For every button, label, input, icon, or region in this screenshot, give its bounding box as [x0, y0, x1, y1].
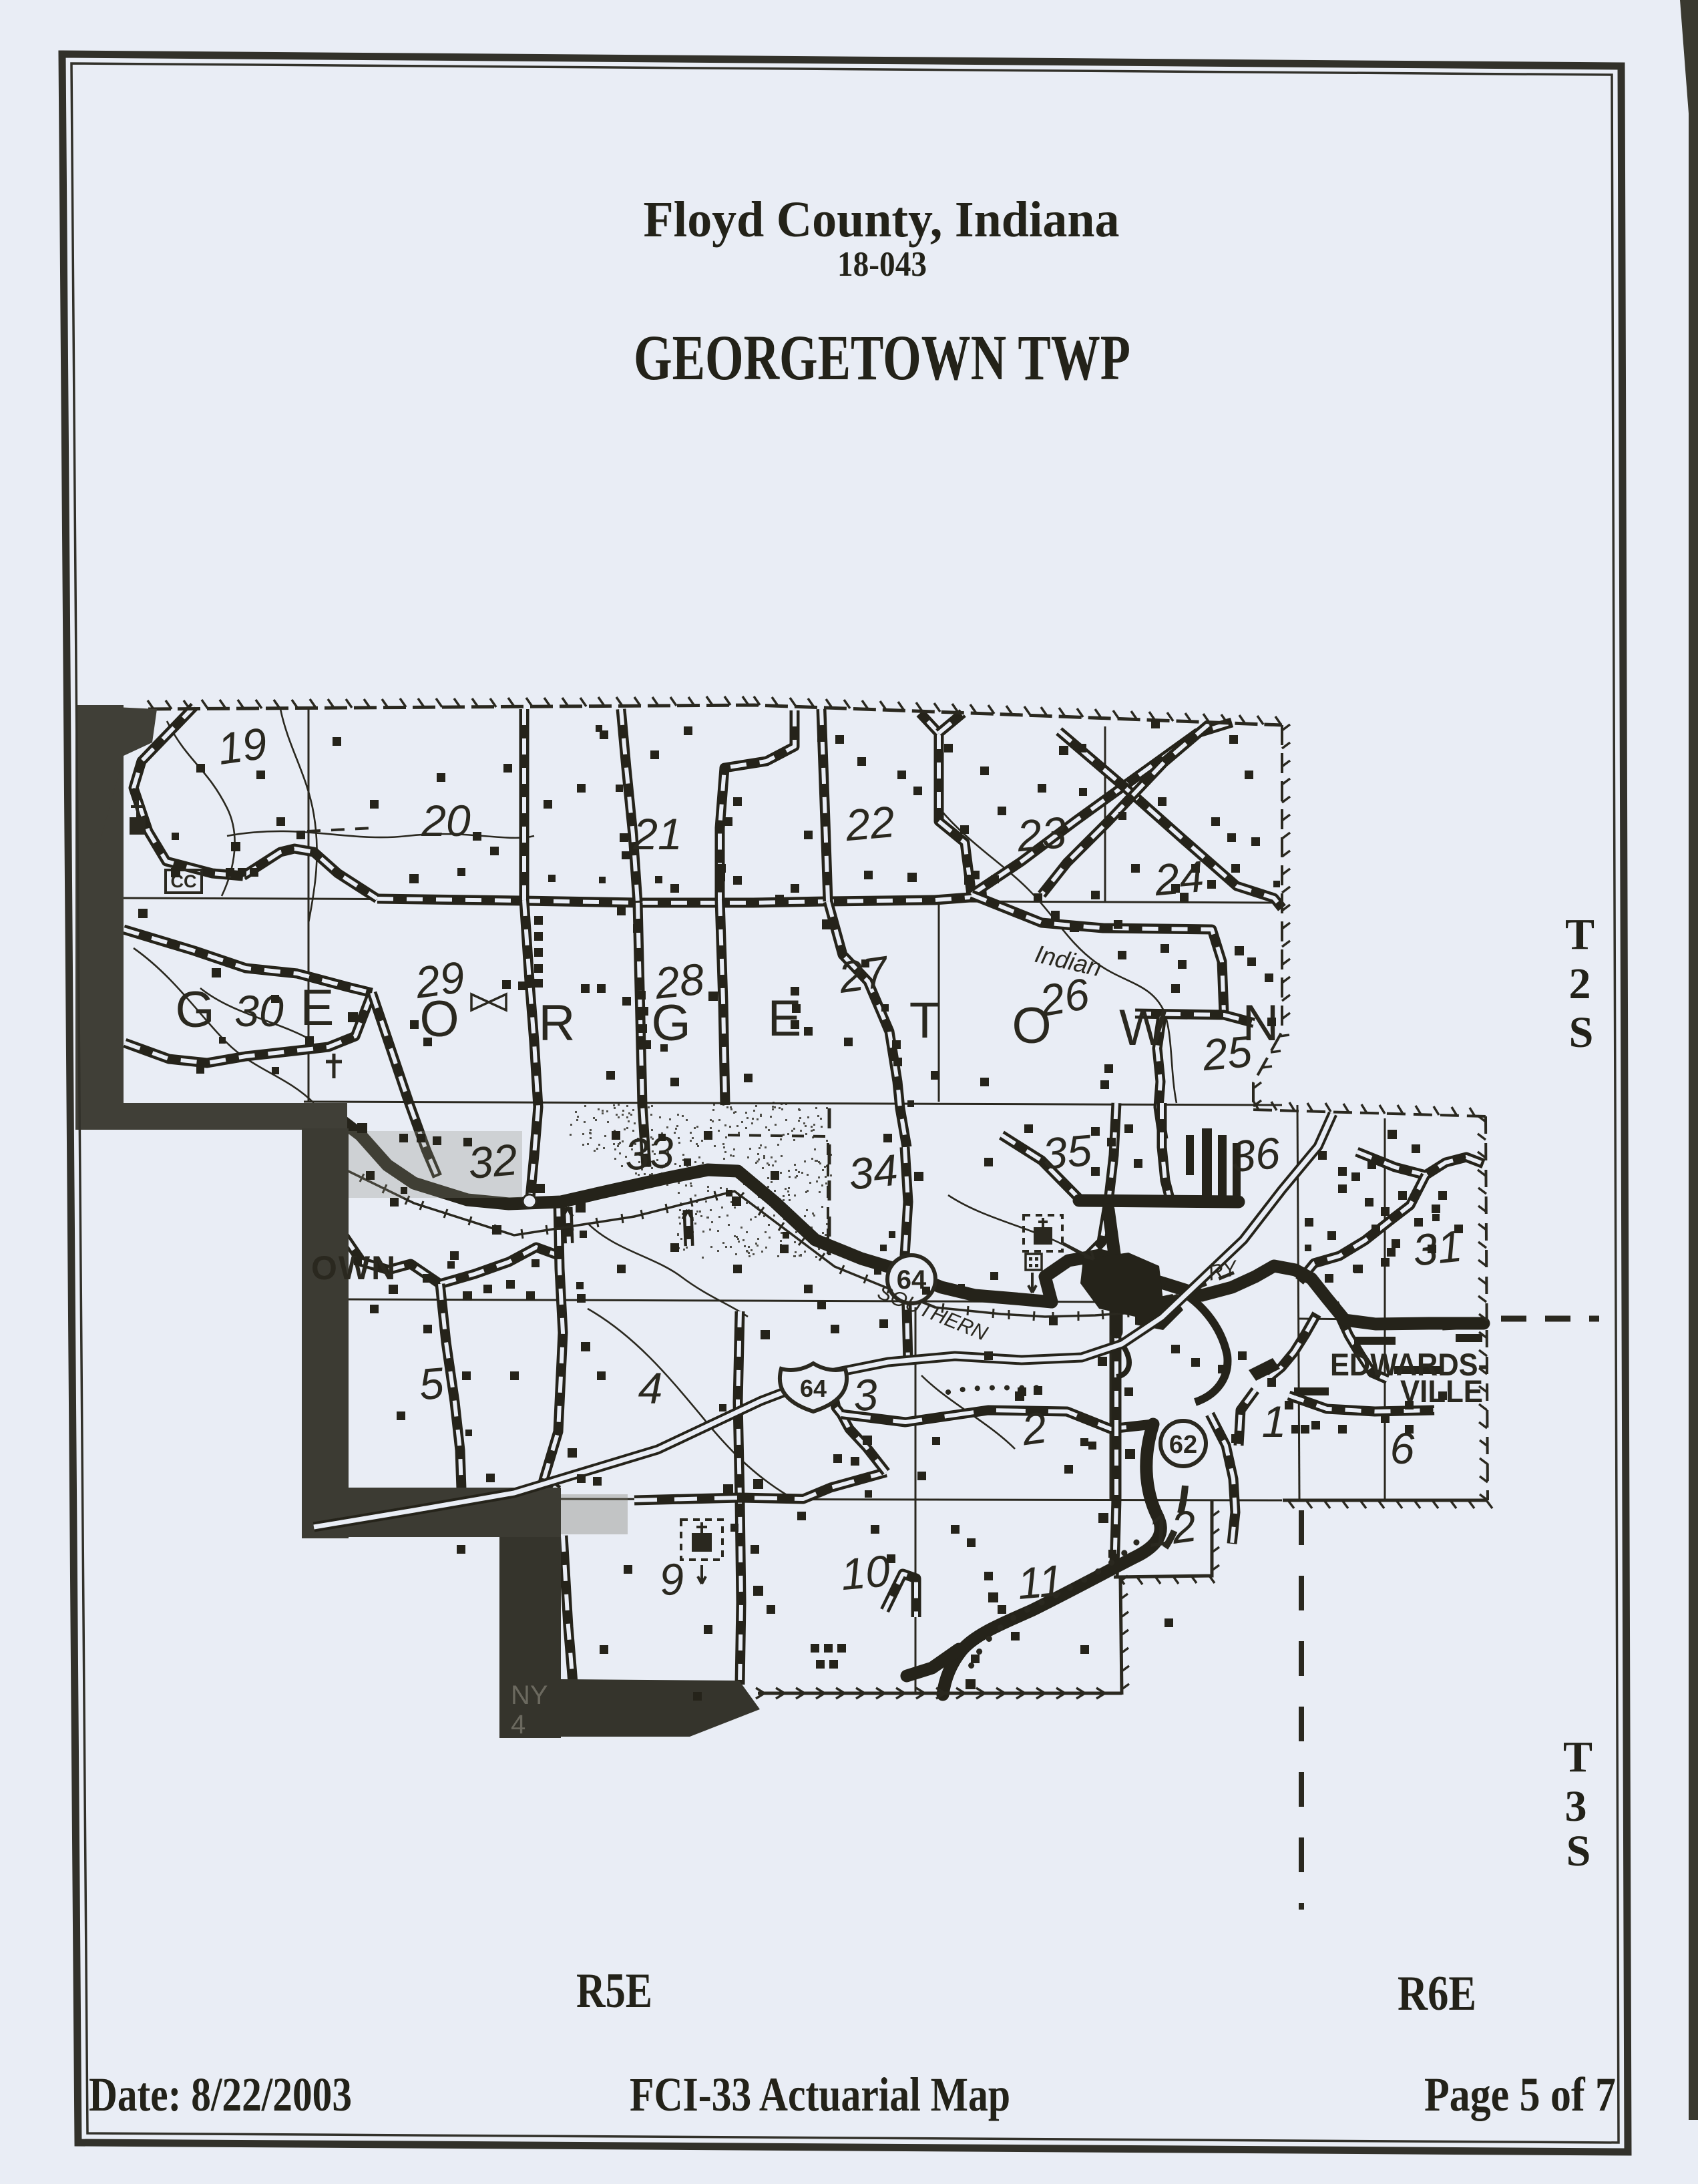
- svg-text:E: E: [300, 979, 335, 1036]
- svg-text:23: 23: [1014, 807, 1068, 861]
- svg-text:36: 36: [1229, 1128, 1282, 1181]
- svg-text:4: 4: [638, 1363, 663, 1413]
- svg-text:FCI-33 Actuarial Map: FCI-33 Actuarial Map: [630, 2068, 1010, 2121]
- svg-text:G: G: [175, 981, 214, 1038]
- svg-text:R6E: R6E: [1398, 1966, 1476, 2021]
- svg-text:T: T: [909, 992, 940, 1049]
- svg-text:3: 3: [851, 1369, 879, 1421]
- svg-text:S: S: [1569, 1008, 1594, 1057]
- svg-text:34: 34: [846, 1144, 900, 1198]
- svg-text:12: 12: [1144, 1500, 1199, 1556]
- svg-text:4: 4: [511, 1710, 525, 1739]
- svg-text:GEORGETOWN TWP: GEORGETOWN TWP: [634, 322, 1130, 393]
- svg-text:NY: NY: [511, 1681, 548, 1710]
- svg-text:T: T: [1563, 1733, 1593, 1781]
- svg-text:18-043: 18-043: [837, 245, 927, 284]
- svg-text:3: 3: [1565, 1782, 1587, 1831]
- svg-text:25: 25: [1200, 1026, 1254, 1080]
- svg-text:35: 35: [1040, 1125, 1094, 1178]
- svg-text:26: 26: [1035, 968, 1092, 1026]
- svg-text:Floyd County, Indiana: Floyd County, Indiana: [644, 192, 1120, 248]
- svg-text:64: 64: [800, 1375, 827, 1402]
- svg-text:1: 1: [1262, 1397, 1287, 1446]
- svg-text:27: 27: [835, 946, 892, 1002]
- svg-text:11: 11: [1016, 1555, 1066, 1608]
- svg-text:32: 32: [466, 1134, 519, 1188]
- svg-text:T: T: [1565, 910, 1595, 959]
- svg-text:19: 19: [214, 718, 270, 773]
- svg-text:20: 20: [421, 796, 471, 845]
- svg-text:29: 29: [411, 951, 467, 1008]
- svg-text:E: E: [768, 990, 802, 1047]
- svg-text:33: 33: [623, 1127, 676, 1180]
- svg-text:S: S: [1566, 1827, 1591, 1876]
- svg-text:Page 5 of 7: Page 5 of 7: [1424, 2068, 1616, 2121]
- svg-text:22: 22: [843, 797, 897, 850]
- svg-text:10: 10: [839, 1546, 892, 1599]
- svg-text:OWN: OWN: [311, 1249, 397, 1287]
- svg-text:W: W: [1119, 1000, 1167, 1056]
- svg-text:30: 30: [234, 986, 284, 1036]
- svg-text:R: R: [539, 995, 576, 1052]
- svg-text:R5E: R5E: [576, 1964, 652, 2018]
- svg-text:21: 21: [632, 809, 682, 859]
- svg-text:62: 62: [1169, 1431, 1197, 1459]
- svg-text:24: 24: [1152, 851, 1206, 905]
- svg-text:2: 2: [1569, 959, 1591, 1008]
- svg-text:Date: 8/22/2003: Date: 8/22/2003: [89, 2068, 352, 2121]
- svg-text:5: 5: [417, 1358, 445, 1409]
- svg-text:9: 9: [657, 1554, 686, 1605]
- svg-text:28: 28: [652, 953, 706, 1008]
